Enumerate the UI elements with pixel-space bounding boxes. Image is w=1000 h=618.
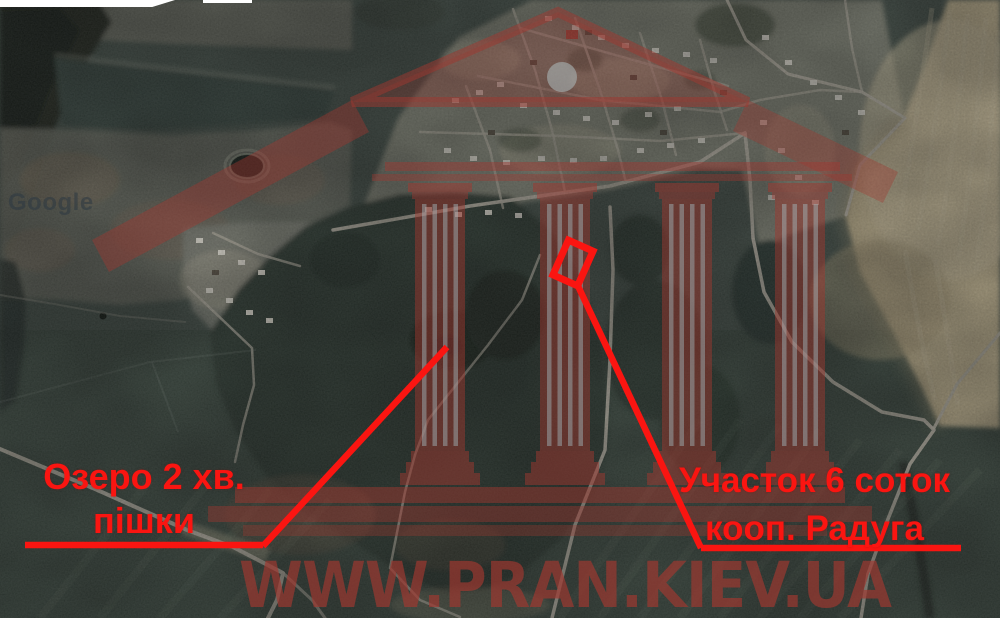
watermark-emblem-circle — [547, 62, 577, 92]
lake-label-line1: Озеро 2 хв. — [18, 456, 270, 498]
plot-label: Участок 6 соток кооп. Радуга — [672, 461, 957, 549]
listing-map-image: WWW.PRAN.KIEV.UA Озеро 2 хв. пішки Участ… — [0, 0, 1000, 618]
plot-label-line2: кооп. Радуга — [672, 509, 957, 550]
screenshot-crop-artifact-2 — [203, 0, 252, 3]
map-attribution: Google — [8, 189, 94, 217]
plot-label-line1: Участок 6 соток — [672, 461, 957, 502]
watermark-site-text: WWW.PRAN.KIEV.UA — [239, 549, 892, 618]
screenshot-crop-artifact-1 — [0, 0, 175, 7]
lake-label: Озеро 2 хв. пішки — [18, 456, 270, 542]
lake-label-line2: пішки — [18, 500, 270, 542]
